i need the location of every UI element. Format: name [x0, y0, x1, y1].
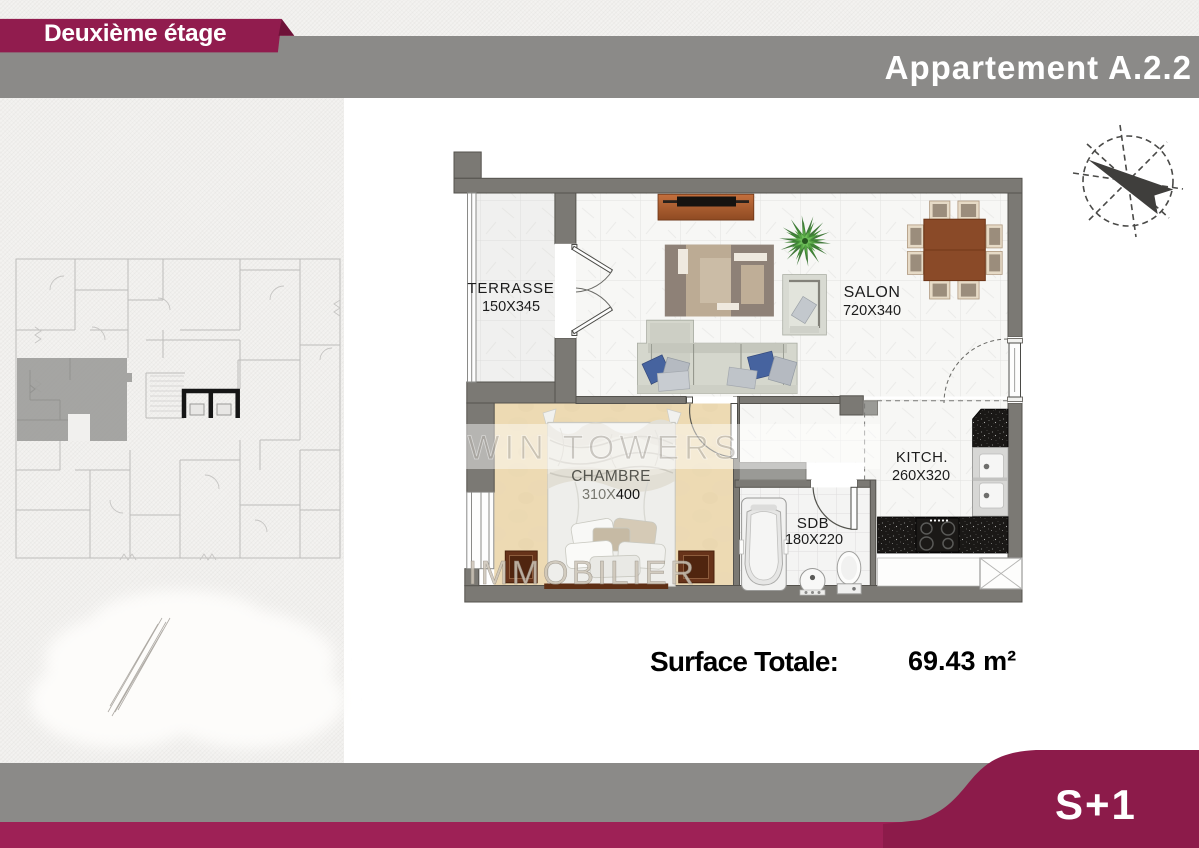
svg-text:CHAMBRE: CHAMBRE [571, 468, 651, 485]
svg-text:SDB: SDB [797, 515, 829, 532]
svg-text:TERRASSE: TERRASSE [467, 280, 554, 297]
svg-text:SALON: SALON [844, 284, 901, 301]
svg-text:720X340: 720X340 [843, 303, 901, 319]
svg-text:150X345: 150X345 [482, 299, 540, 315]
svg-text:310X400: 310X400 [582, 487, 640, 503]
svg-text:180X220: 180X220 [785, 532, 843, 548]
svg-text:IMMOBILIER: IMMOBILIER [468, 554, 700, 591]
svg-text:260X320: 260X320 [892, 468, 950, 484]
svg-text:KITCH.: KITCH. [896, 449, 948, 466]
svg-text:WIN TOWERS: WIN TOWERS [468, 429, 743, 467]
